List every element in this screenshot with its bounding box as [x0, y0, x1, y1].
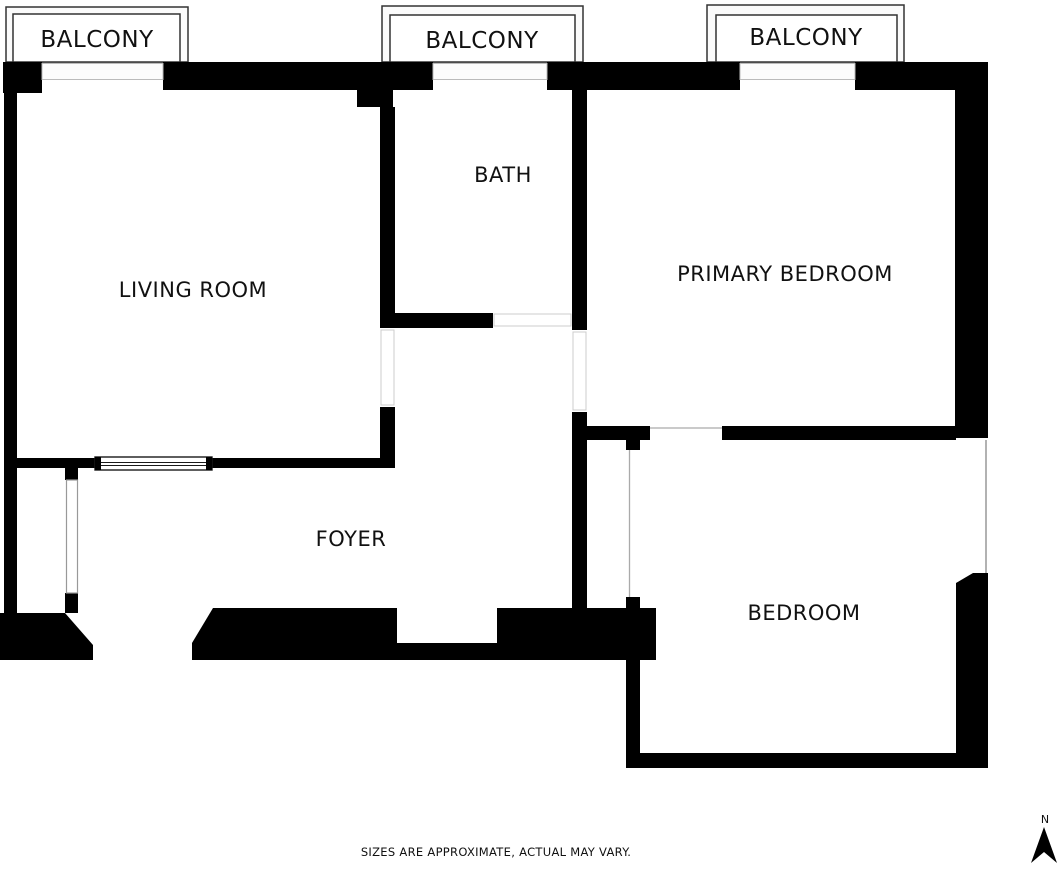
living-room-door-opening [381, 330, 394, 405]
north-arrow-icon [1031, 827, 1057, 863]
wall-corner-top-left [3, 62, 42, 93]
wall-bath-west [380, 107, 395, 328]
balcony-3-label: BALCONY [749, 25, 863, 51]
wall-right-exterior [955, 90, 988, 438]
wall-foyer-south-thin [397, 643, 497, 660]
living-room-label: LIVING ROOM [119, 278, 267, 302]
labels: BALCONY BALCONY BALCONY LIVING ROOM BATH… [40, 25, 893, 859]
foyer-window [67, 480, 78, 593]
floor-plan-svg: BALCONY BALCONY BALCONY LIVING ROOM BATH… [0, 0, 1062, 872]
balcony-3-door [740, 64, 855, 80]
bath-label: BATH [474, 163, 532, 187]
wall-left-exterior [4, 90, 17, 620]
balcony-2-label: BALCONY [425, 28, 539, 54]
wall-divider-stub [626, 440, 640, 450]
wall-foyer-west-stub-top [65, 468, 78, 480]
balcony-2-door [433, 64, 547, 80]
wall-corner-top-right [955, 62, 988, 93]
wall-bedroom-east-block [956, 573, 988, 768]
bath-door-opening [494, 314, 571, 326]
doors [381, 314, 722, 597]
wall-living-south-right [212, 458, 393, 468]
wall-top-segment-2 [547, 62, 740, 90]
living-room-window-cap-left [95, 457, 101, 470]
wall-divider-right [722, 426, 956, 440]
wall-divider-left [585, 426, 650, 440]
windows [67, 440, 987, 593]
wall-top-segment-3 [855, 62, 956, 90]
wall-entry-block-left [0, 613, 93, 660]
bedroom-label: BEDROOM [747, 601, 860, 625]
wall-entry-block-right [192, 608, 397, 660]
wall-pillar-bath-west [357, 62, 393, 107]
balcony-1-door [42, 64, 163, 80]
wall-foyer-south-right [497, 608, 656, 660]
primary-bedroom-door-opening [573, 332, 586, 410]
wall-foyer-west-stub-bottom [65, 593, 78, 613]
wall-bedroom-south [626, 753, 988, 768]
balcony-1-label: BALCONY [40, 27, 154, 53]
wall-bath-south [380, 313, 493, 328]
wall-living-south-left [17, 458, 95, 468]
wall-bath-east [572, 90, 587, 330]
living-room-window [95, 457, 212, 470]
floor-plan-canvas: BALCONY BALCONY BALCONY LIVING ROOM BATH… [0, 0, 1062, 872]
north-label: N [1041, 813, 1049, 826]
foyer-label: FOYER [316, 527, 387, 551]
living-room-window-cap-right [206, 457, 212, 470]
compass: N [1031, 813, 1057, 863]
disclaimer-text: SIZES ARE APPROXIMATE, ACTUAL MAY VARY. [361, 845, 631, 859]
primary-bedroom-label: PRIMARY BEDROOM [677, 262, 893, 286]
